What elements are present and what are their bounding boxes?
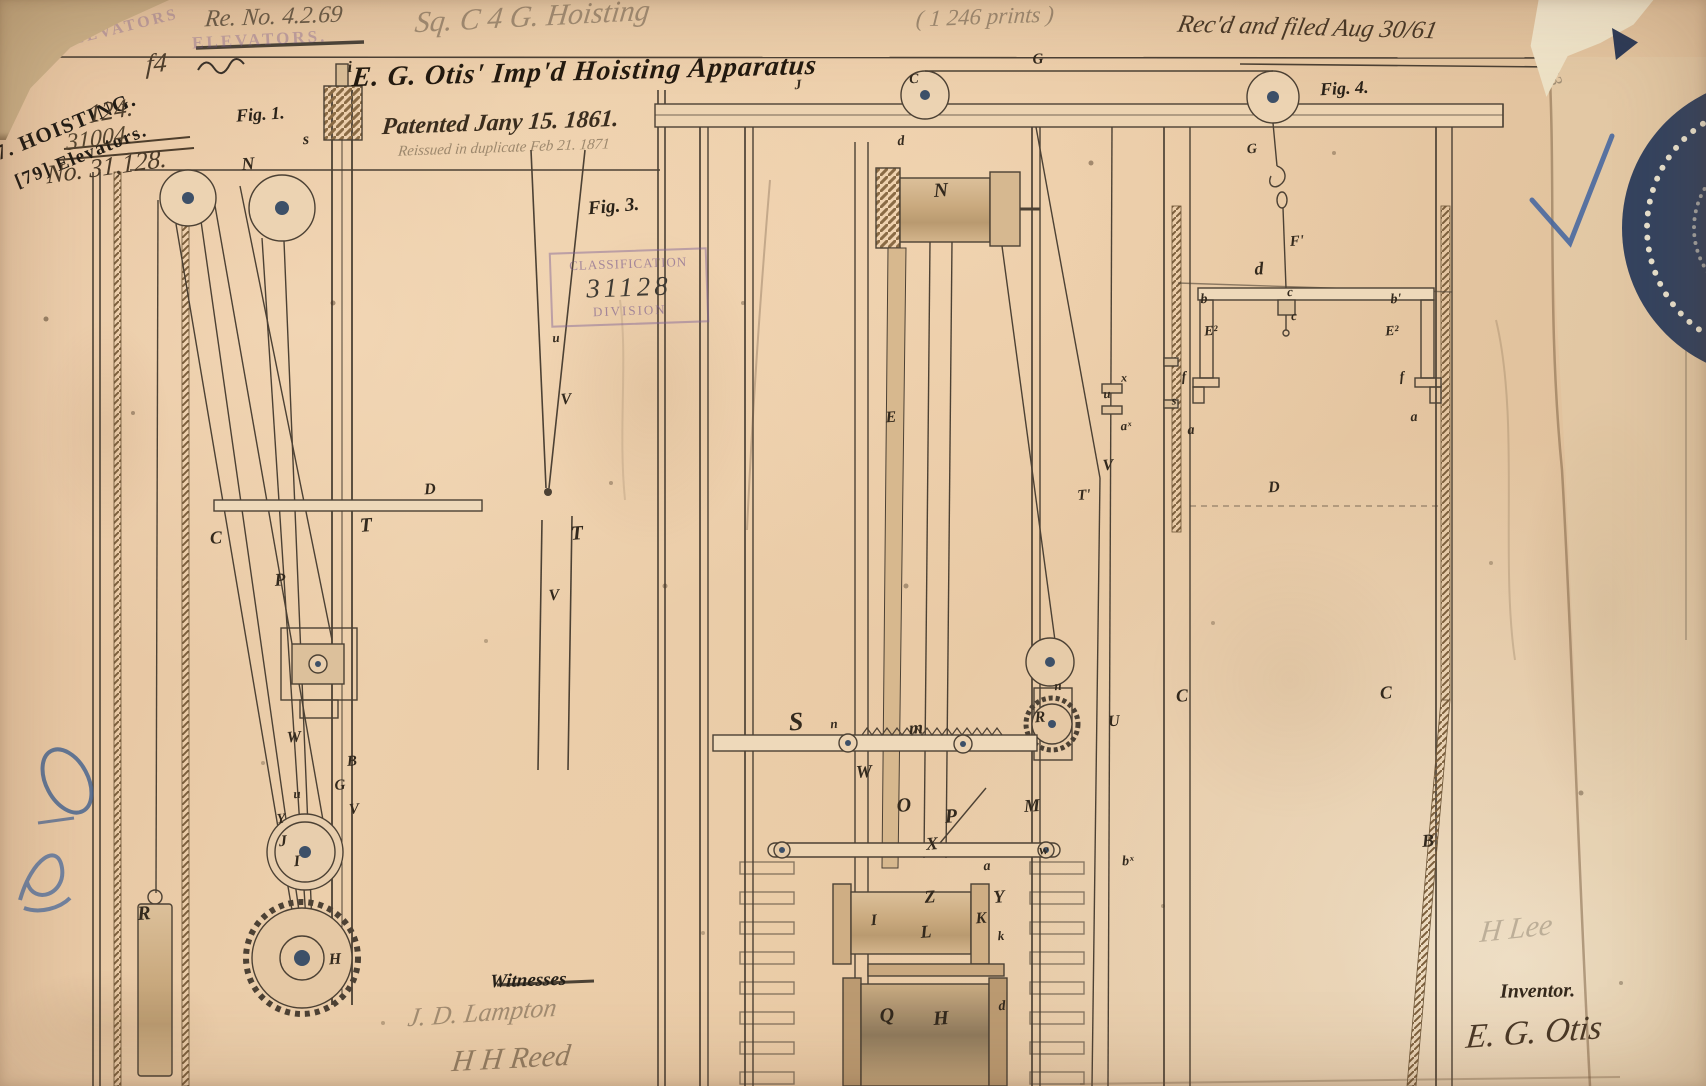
blue-scribble <box>20 855 70 910</box>
scanned-patent-sheet: Re. No. 4.2.69 ELEVATORS ELEVATORS. 7. H… <box>0 0 1706 1086</box>
witnesses-label: Witnesses <box>489 969 567 994</box>
figure-1-label: Fig. 1. <box>235 102 285 126</box>
witness-signature-2: H H Reed <box>450 1039 572 1079</box>
count-note: ( 1 246 prints ) <box>915 2 1055 33</box>
patent-drawing <box>0 0 1706 1086</box>
figure-4-platform <box>1164 123 1452 1086</box>
figure-3-ropes <box>531 150 585 770</box>
blue-crayon-marks <box>20 136 1612 910</box>
figure-4-label: Fig. 4. <box>1319 77 1369 101</box>
classification-stamp: CLASSIFICATION 31128 DIVISION <box>549 247 710 327</box>
figure-2-machine <box>655 71 1503 1086</box>
inventor-label: Inventor. <box>1500 979 1575 1003</box>
figure-3-label: Fig. 3. <box>587 194 640 220</box>
figure-1-hoist <box>114 64 482 1086</box>
blue-oval-mark <box>32 741 101 821</box>
paper-sheet: Re. No. 4.2.69 ELEVATORS ELEVATORS. 7. H… <box>0 0 1706 1086</box>
classification-stamp-number: 31128 <box>558 270 701 306</box>
case-mark-f4: f4 <box>146 47 168 80</box>
